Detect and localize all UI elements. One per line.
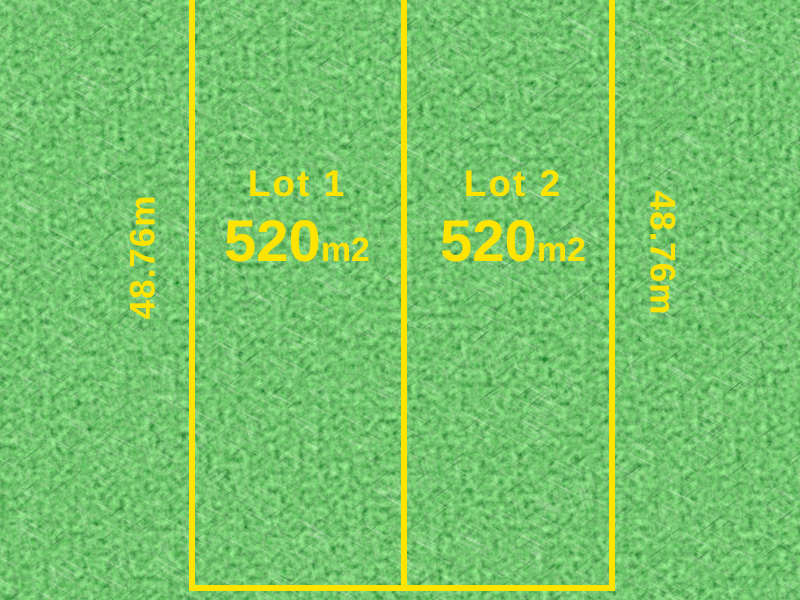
dimension-label-left: 48.76m	[126, 195, 161, 320]
lot-1-area-unit: m2	[321, 231, 370, 269]
lot-1-area-value: 520	[224, 209, 321, 274]
boundary-line-right	[609, 0, 615, 591]
lot-2-area-value: 520	[440, 209, 537, 274]
lot-2-label: Lot 2 520m2	[440, 165, 586, 271]
boundary-line-bottom	[189, 585, 615, 591]
dimension-label-right: 48.76m	[645, 191, 680, 316]
land-subdivision-image: Lot 1 520m2 Lot 2 520m2 48.76m 48.76m	[0, 0, 800, 600]
lot-2-name: Lot 2	[440, 165, 586, 202]
lot-1-area: 520m2	[224, 213, 370, 271]
boundary-line-left	[189, 0, 195, 591]
lot-1-label: Lot 1 520m2	[224, 165, 370, 271]
lot-1-name: Lot 1	[224, 165, 370, 202]
lot-2-area: 520m2	[440, 213, 586, 271]
boundary-line-middle	[401, 0, 407, 591]
lot-2-area-unit: m2	[537, 231, 586, 269]
